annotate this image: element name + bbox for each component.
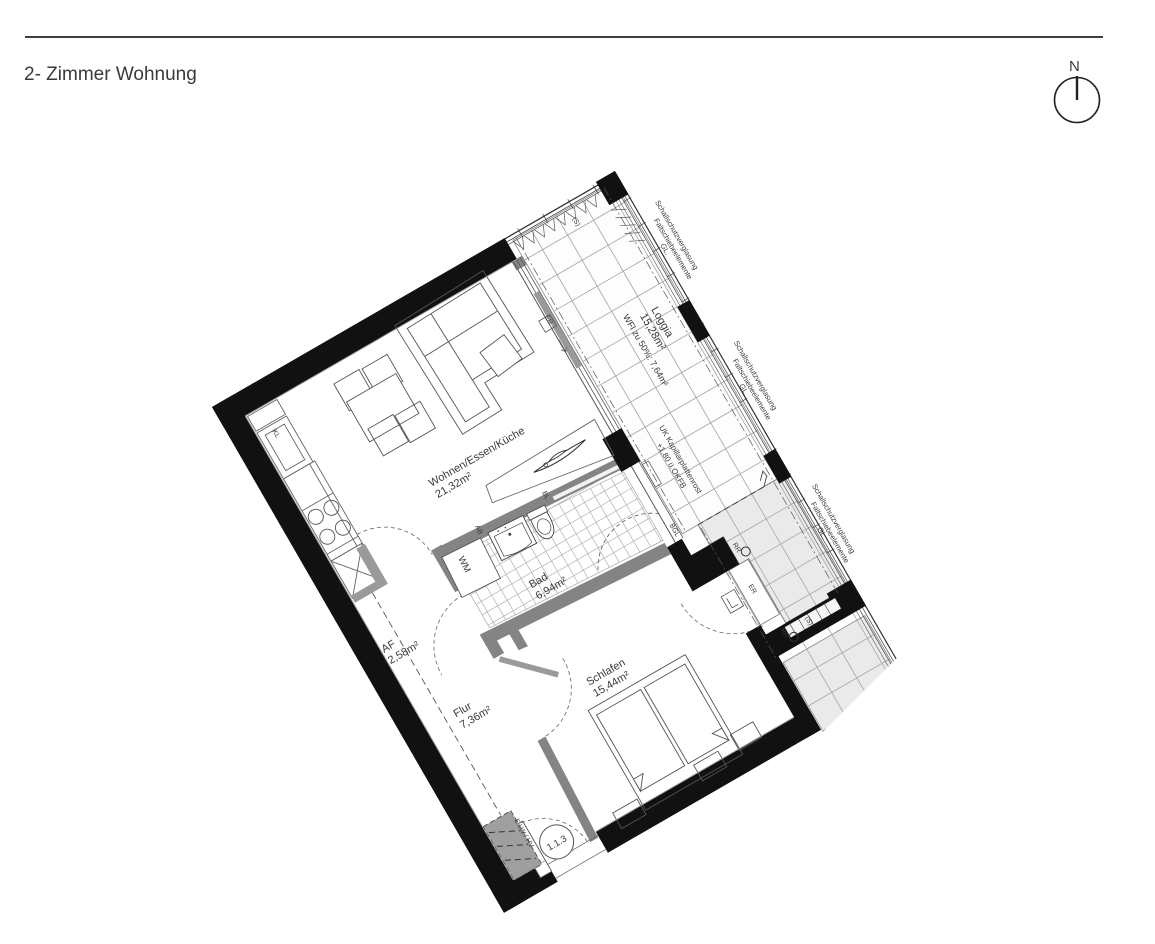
svg-text:N: N [1069,58,1080,75]
svg-text:2- Zimmer Wohnung: 2- Zimmer Wohnung [24,64,197,85]
